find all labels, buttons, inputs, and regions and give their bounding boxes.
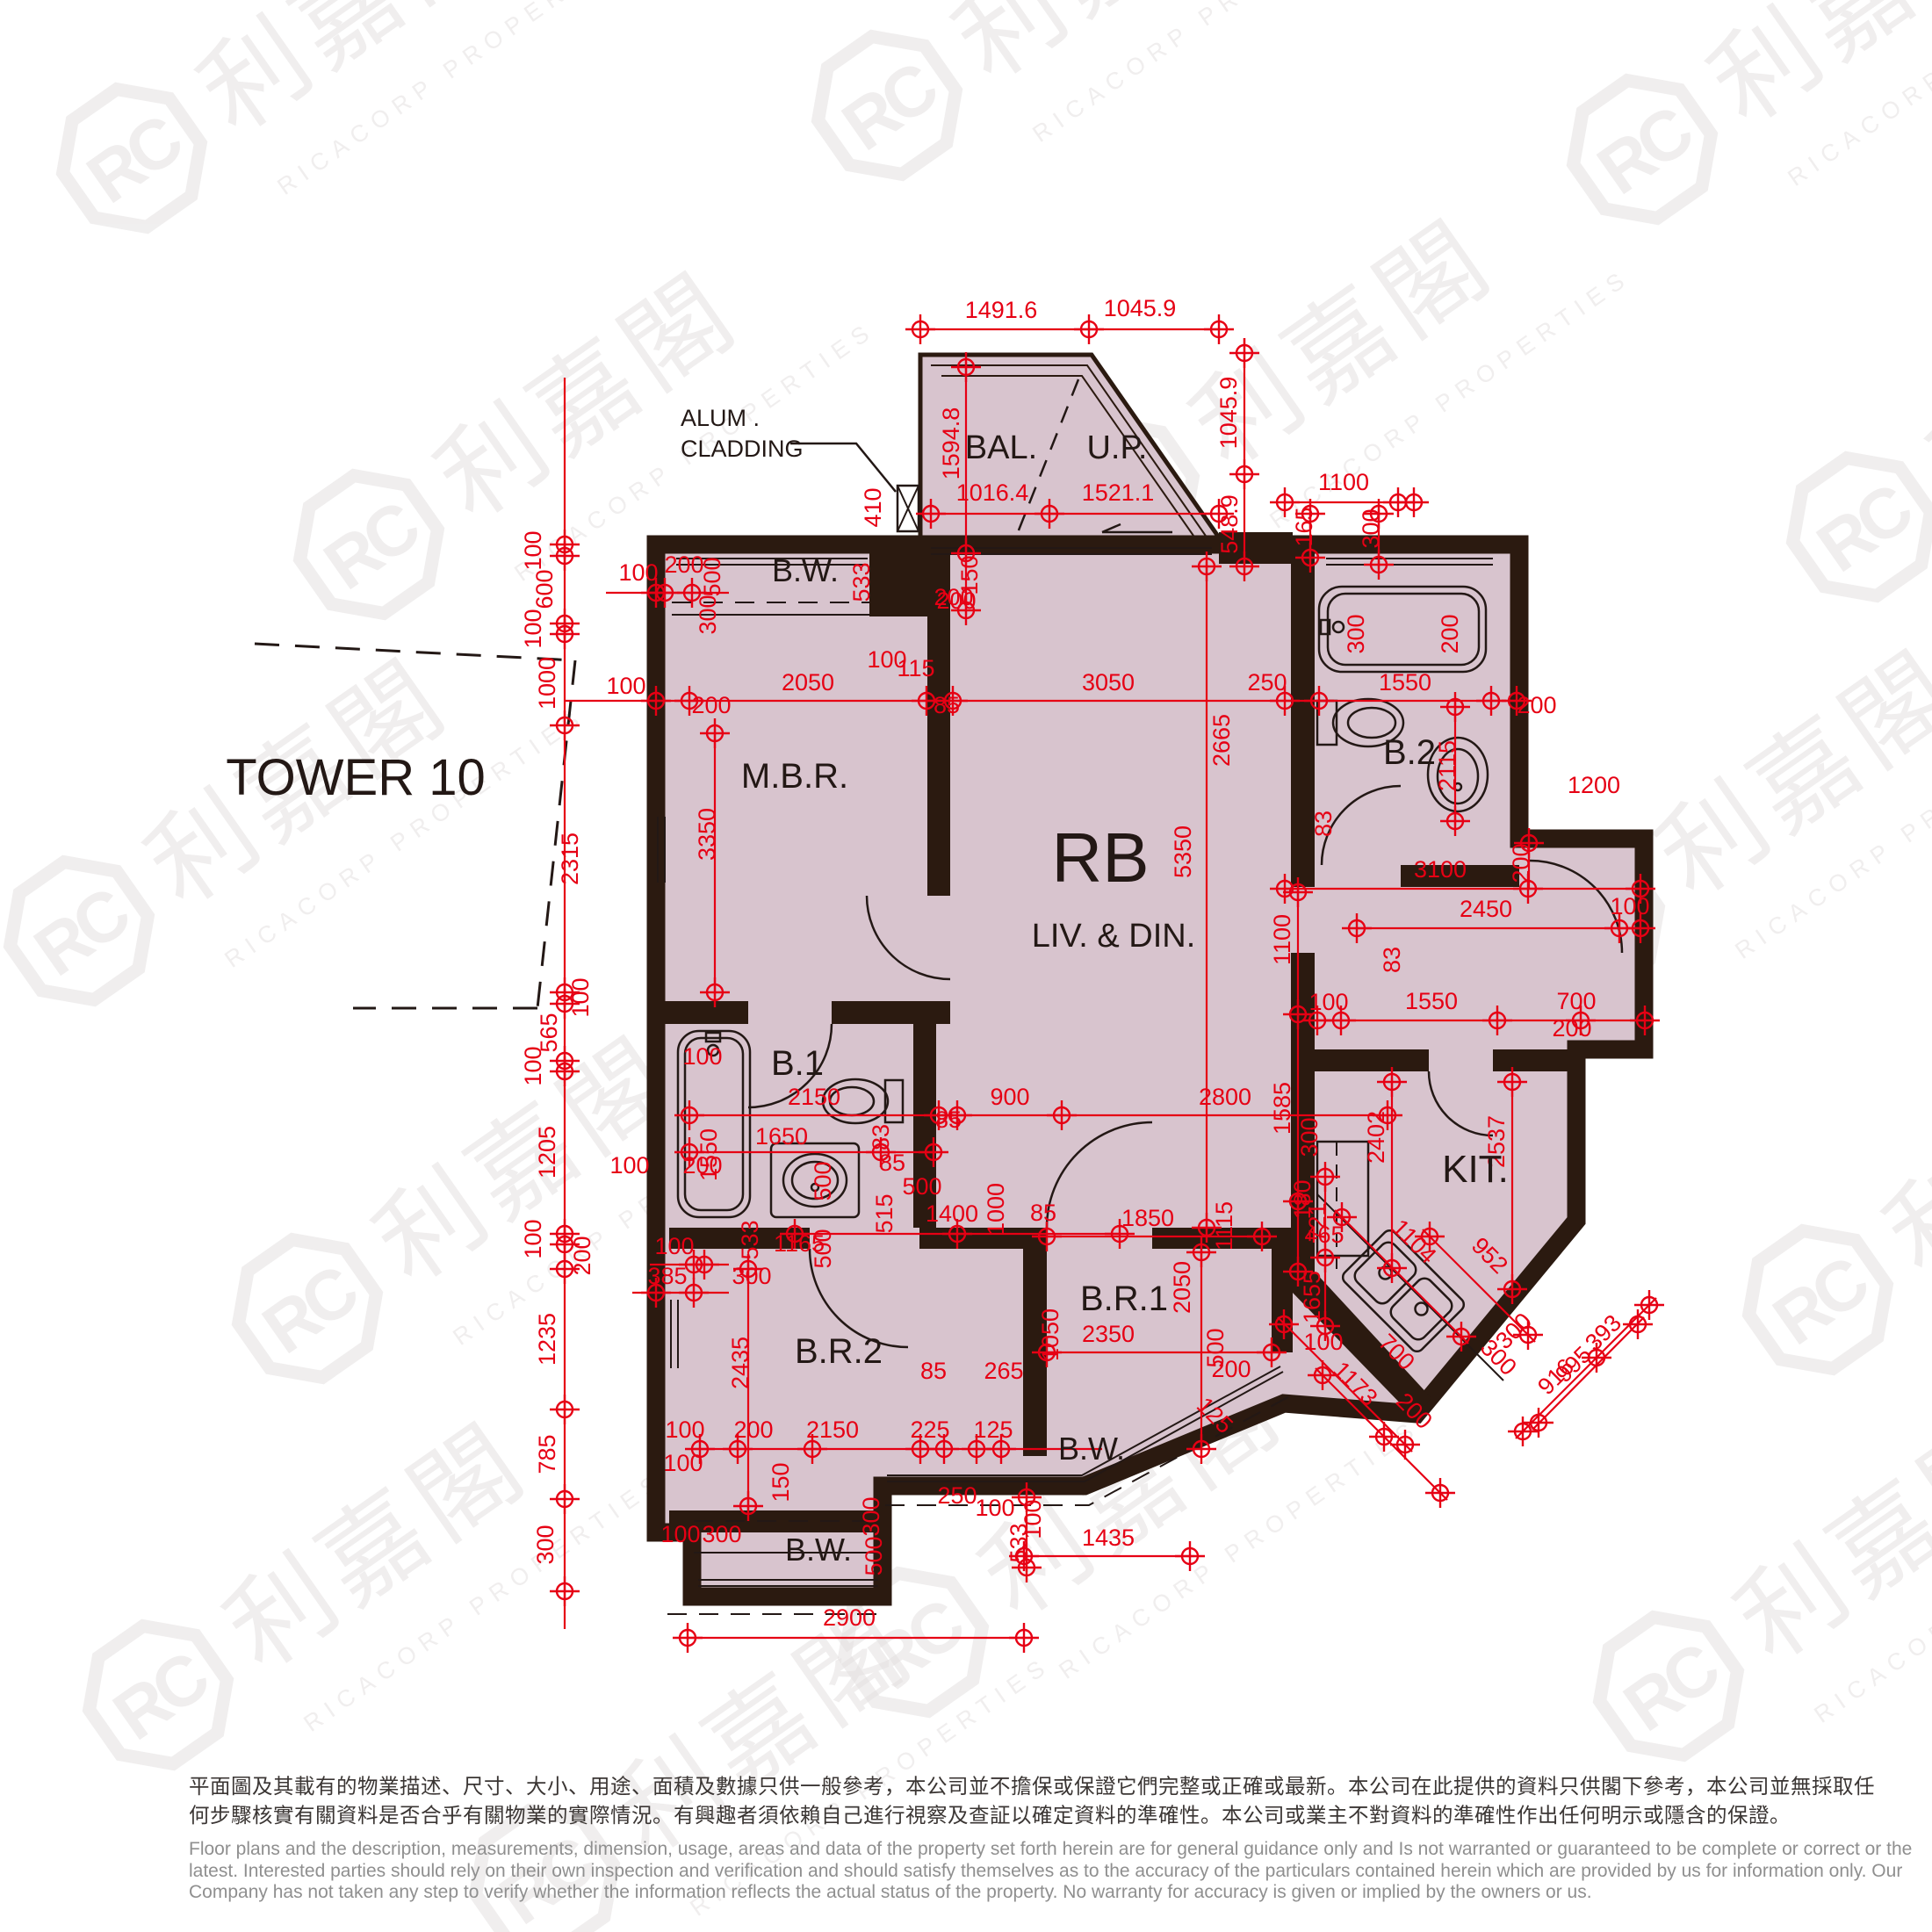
- room-label-bedroom-1: B.R.1: [1080, 1280, 1168, 1318]
- dimension-label: 1435: [1082, 1525, 1135, 1551]
- dimension-label: 1100: [1269, 914, 1295, 965]
- dimension-tick-icon: [905, 314, 935, 344]
- dimension-label: 1205: [534, 1126, 560, 1179]
- dimension-label: 515: [871, 1193, 898, 1233]
- dimension-label: 2050: [782, 669, 834, 696]
- dimension-tick-icon: [673, 1623, 703, 1653]
- disclaimer-cn-line1: 平面圖及其載有的物業描述、尺寸、大小、用途、面積及數據只供一般參考，本公司並不擔…: [189, 1772, 1752, 1801]
- dimension-label: 100: [654, 1233, 694, 1259]
- dimension-label: 100: [665, 1417, 704, 1443]
- dimension-label: 100: [606, 673, 645, 699]
- floor-plan-page: RC 利嘉閣 RICACORP PROPERTIES: [0, 0, 1932, 1932]
- dimension-label: 165: [1291, 507, 1317, 546]
- dimension-label: 2435: [727, 1337, 753, 1389]
- dimension-label: 85: [920, 1358, 947, 1384]
- dimension-label: 500: [699, 557, 725, 596]
- dimension-label: 500: [861, 1536, 887, 1575]
- dimension-label: 300: [532, 1525, 559, 1564]
- dimension-label: 393: [1580, 1309, 1626, 1356]
- dimension-label: 2800: [1199, 1084, 1251, 1110]
- dimension-label: 83: [1310, 811, 1337, 837]
- dimension-label: 1850: [1121, 1205, 1174, 1231]
- dimension-label: 410: [860, 487, 886, 527]
- dimension-label: 600: [531, 569, 558, 609]
- dimension-label: 548.9: [1216, 494, 1243, 554]
- dimension-label: 200: [691, 692, 731, 718]
- dimension-label: 100: [1610, 893, 1649, 919]
- dimension-label: 300: [858, 1496, 884, 1536]
- dimension-label: 1594.8: [938, 407, 964, 480]
- disclaimer-en-line2: latest. Interested parties should rely o…: [189, 1861, 1752, 1883]
- dimension-label: 100: [520, 1219, 546, 1258]
- dimension-tick-icon: [1074, 314, 1104, 344]
- disclaimer-en-line3: Company has not taken any step to verify…: [189, 1882, 1752, 1904]
- dimension-label: 100: [609, 1152, 649, 1179]
- dimension-tick-icon: [550, 1576, 580, 1606]
- dimension-label: 85: [935, 1107, 962, 1133]
- dimension-label: 1491.6: [965, 297, 1038, 323]
- dimension-label: 533: [737, 1220, 763, 1259]
- room-label-bay-window-top: B.W.: [772, 552, 839, 588]
- disclaimer-en-line1: Floor plans and the description, measure…: [189, 1839, 1752, 1861]
- dimension-label: 500: [810, 1229, 836, 1268]
- dimension-label: 465: [1304, 1222, 1344, 1248]
- dimension-label: 300: [695, 595, 721, 634]
- disclaimer-english: Floor plans and the description, measure…: [189, 1839, 1752, 1904]
- tower-title: TOWER 10: [226, 749, 485, 806]
- dimension-label: 250: [937, 1482, 977, 1509]
- room-label-room-type: RB: [1051, 818, 1149, 897]
- dimension-label: 100: [520, 1046, 546, 1085]
- dimension-label: 2402: [1363, 1111, 1389, 1164]
- dimension-label: 115: [897, 655, 934, 681]
- dimension-label: 100: [660, 1521, 700, 1547]
- dimension-label: 1000: [983, 1183, 1009, 1236]
- dimension-label: 2350: [1082, 1321, 1135, 1347]
- dimension-label: 200: [1437, 614, 1463, 653]
- dimension-label: 100: [520, 609, 546, 648]
- dimension-label: 85: [879, 1150, 905, 1176]
- room-label-living-dining: LIV. & DIN.: [1032, 918, 1196, 955]
- dimension-label: 100: [567, 977, 594, 1017]
- dimension-label: 2900: [823, 1604, 876, 1631]
- room-label-bay-window-bottom: B.W.: [785, 1532, 852, 1568]
- dimension-label: 500: [810, 1161, 836, 1200]
- dimension-label: 3350: [694, 808, 720, 861]
- dimension-label: 200: [1508, 843, 1534, 883]
- dimension-label: 533: [848, 562, 875, 602]
- dimension-label: 100: [682, 1043, 722, 1070]
- room-label-bedroom-2: B.R.2: [795, 1332, 883, 1371]
- room-label-bathroom-1: B.1: [771, 1044, 824, 1083]
- dimension-label: 5350: [1170, 825, 1196, 878]
- dimension-label: 900: [990, 1084, 1029, 1110]
- dimension-label: 2150: [788, 1084, 840, 1110]
- dimension-label: 2115: [1434, 740, 1460, 791]
- disclaimer-cn-line2: 何步驟核實有關資料是否合乎有關物業的實際情況。有興趣者須依賴自己進行視察及查証以…: [189, 1801, 1752, 1830]
- dimension-label: 125: [973, 1417, 1013, 1443]
- cladding-label-line2: CLADDING: [681, 436, 804, 462]
- dimension-label: 200: [569, 1236, 595, 1275]
- dimension-label: 1100: [1318, 469, 1369, 495]
- cladding-leader-line: [790, 443, 896, 492]
- dimension-label: 1235: [534, 1313, 560, 1366]
- dimension-tick-icon: [1204, 314, 1234, 344]
- dimension-label: 1650: [755, 1123, 808, 1150]
- dimension-label: 200: [1517, 692, 1556, 718]
- dimension-tick-icon: [550, 1395, 580, 1424]
- disclaimer-chinese: 平面圖及其載有的物業描述、尺寸、大小、用途、面積及數據只供一般參考，本公司並不擔…: [189, 1772, 1752, 1830]
- dimension-label: 300: [1358, 508, 1384, 548]
- room-label-master-bedroom: M.B.R.: [741, 757, 848, 796]
- room-label-utility-platform: U.P.: [1086, 429, 1147, 466]
- dimension-label: 500: [902, 1173, 941, 1200]
- dimension-label: 2150: [806, 1417, 859, 1443]
- dimension-label: 100: [663, 1450, 703, 1476]
- room-label-kitchen: KIT.: [1442, 1148, 1509, 1191]
- dimension-label: 2050: [1169, 1261, 1195, 1314]
- dimension-label: 100: [1020, 1499, 1046, 1539]
- dimension-label: 85: [934, 692, 960, 718]
- room-label-bathroom-2: B.2: [1383, 733, 1436, 772]
- dimension-label: 300: [1343, 614, 1369, 653]
- dimension-label: 200: [1211, 1356, 1251, 1382]
- dimension-label: 2665: [1208, 714, 1235, 767]
- dimension-label: 1045.9: [1215, 377, 1242, 450]
- dimension-label: 265: [984, 1358, 1023, 1384]
- dimension-label: 250: [1247, 669, 1287, 696]
- dimension-label: 100: [520, 530, 546, 570]
- dimension-label: 300: [702, 1521, 741, 1547]
- dimension-label: 1550: [1405, 988, 1458, 1014]
- dimension-label: 385: [647, 1263, 687, 1289]
- dimension-label: 1045.9: [1104, 295, 1177, 321]
- dimension-label: 150: [768, 1462, 794, 1502]
- dimension-label: 1115: [1211, 1201, 1237, 1251]
- dimension-label: 100: [618, 559, 658, 586]
- dimension-label: 200: [733, 1417, 773, 1443]
- dimension-label: 100: [975, 1495, 1014, 1521]
- dimension-label: 83: [1379, 947, 1405, 973]
- dimension-label: 100: [1308, 989, 1348, 1015]
- dimension-label: 300: [732, 1263, 771, 1289]
- dimension-label: 1521.1: [1082, 479, 1155, 506]
- cladding-label-line1: ALUM .: [681, 405, 760, 431]
- dimension-label: 3050: [1082, 669, 1135, 696]
- dimension-label: 700: [1556, 988, 1596, 1014]
- dimension-label: 3100: [1414, 856, 1467, 883]
- dimension-label: 300: [1296, 1117, 1323, 1157]
- dimension-label: 1200: [1568, 772, 1620, 798]
- dimension-label: 1550: [1379, 669, 1431, 696]
- dimension-label: 1585: [1269, 1082, 1295, 1135]
- dimension-label: 100: [1303, 1329, 1343, 1355]
- dimension-label: 1050: [1037, 1308, 1063, 1361]
- dimension-label: 200: [664, 551, 703, 578]
- dimension-label: 1655: [1299, 1271, 1325, 1323]
- dimension-label: 225: [910, 1417, 949, 1443]
- alum-cladding-marker: [790, 443, 919, 531]
- dimension-tick-icon: [550, 1484, 580, 1514]
- dimension-label: 1400: [926, 1200, 978, 1227]
- floor-plan-canvas: RC 利嘉閣 RICACORP PROPERTIES: [0, 0, 1932, 1932]
- dimension-label: 1016.4: [956, 479, 1029, 506]
- dimension-label: 785: [534, 1434, 560, 1474]
- dimension-label: 200: [936, 588, 976, 614]
- dimension-label: 85: [1030, 1200, 1056, 1226]
- room-label-bay-window-right: B.W.: [1058, 1431, 1125, 1467]
- dimension-tick-icon: [1399, 487, 1429, 517]
- room-label-balcony: BAL.: [965, 429, 1037, 466]
- dimension-label: 200: [682, 1152, 722, 1179]
- dimension-label: 83: [868, 1124, 894, 1150]
- dimension-label: 2450: [1460, 896, 1512, 922]
- dimension-label: 1000: [534, 657, 560, 710]
- dimension-label: 200: [1552, 1015, 1591, 1042]
- dimension-label: 2315: [557, 833, 583, 885]
